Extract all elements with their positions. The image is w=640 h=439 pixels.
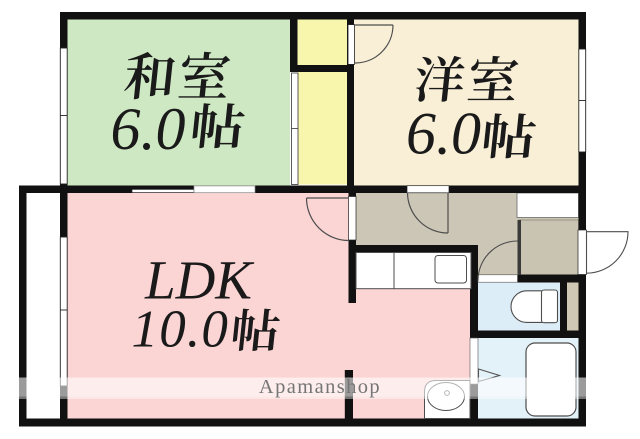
svg-text:6.0: 6.0 bbox=[406, 101, 481, 167]
svg-text:6.0: 6.0 bbox=[111, 96, 186, 162]
svg-text:10.0: 10.0 bbox=[132, 301, 230, 359]
svg-text:Apamanshop: Apamanshop bbox=[259, 376, 381, 398]
